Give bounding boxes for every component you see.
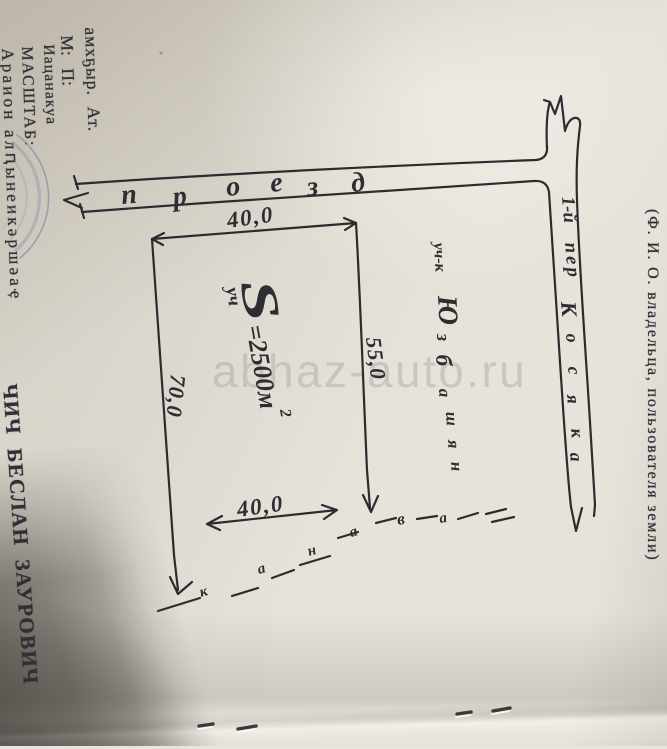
svg-text:уч-к: уч-к (430, 240, 449, 273)
svg-text:70,0: 70,0 (162, 373, 191, 419)
svg-text:п: п (120, 179, 138, 211)
svg-text:1-й: 1-й (557, 196, 580, 224)
svg-text:н: н (306, 542, 318, 560)
svg-text:я: я (563, 393, 584, 405)
svg-text:а: а (438, 510, 448, 527)
svg-text:пер: пер (560, 242, 584, 281)
svg-text:к: к (567, 428, 588, 440)
svg-text:з: з (304, 171, 319, 203)
svg-text:в: в (395, 509, 406, 529)
svg-text:р: р (169, 180, 189, 213)
svg-text:о: о (224, 171, 241, 203)
svg-text:уч: уч (221, 284, 245, 308)
svg-text:55,0: 55,0 (361, 336, 391, 382)
svg-text:о: о (562, 333, 583, 344)
svg-text:а: а (566, 452, 587, 463)
svg-text:н: н (447, 461, 466, 471)
svg-text:а: а (435, 388, 454, 398)
svg-text:=2500м: =2500м (240, 323, 283, 411)
svg-text:а: а (256, 560, 268, 578)
svg-text:с: с (564, 366, 585, 376)
svg-text:2: 2 (276, 407, 294, 419)
svg-text:з: з (432, 332, 453, 342)
svg-text:ш: ш (442, 411, 462, 426)
svg-text:Ю: Ю (431, 294, 464, 326)
svg-text:д: д (349, 167, 366, 199)
svg-text:40,0: 40,0 (224, 202, 275, 234)
svg-text:б: б (431, 354, 457, 368)
svg-text:я: я (444, 438, 463, 449)
svg-text:К: К (556, 299, 582, 318)
